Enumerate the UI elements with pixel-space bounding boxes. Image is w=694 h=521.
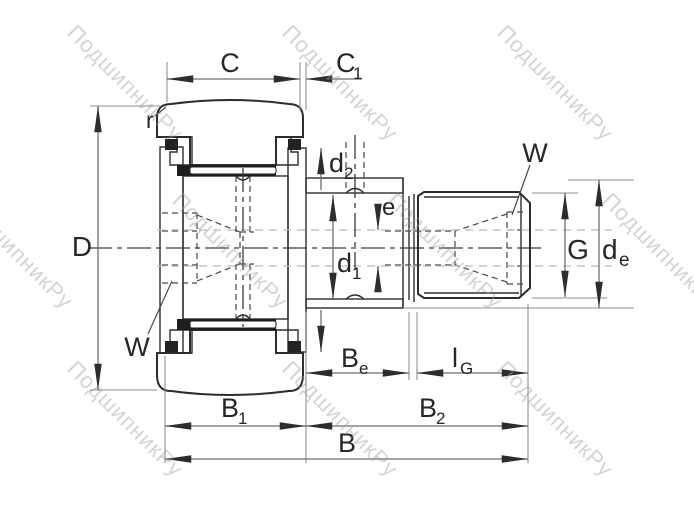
collar-bottom-section [306,299,403,308]
dim-label-d1: d [337,248,352,278]
watermark-text: ПодшипникРу [277,20,403,146]
drawing-canvas: C C 1 r D W W d 2 d 1 e G d e B e l G B … [0,0,694,521]
dim-label-d2-sub: 2 [344,164,353,183]
dim-label-B2: B [419,393,437,423]
dim-label-B2-sub: 2 [436,409,445,428]
dim-label-C: C [220,48,240,78]
needle-rollers-top [177,165,276,176]
dim-label-d2: d [329,148,344,178]
seal-clamp-bottom-left [165,341,178,352]
dim-label-B1: B [221,393,239,423]
watermark-text: ПодшипникРу [62,356,188,482]
dim-label-de: d [602,234,618,265]
watermark-text: ПодшипникРу [62,20,188,146]
watermark-text: ПодшипникРу [382,188,508,314]
dim-label-G: G [567,234,589,265]
needle-rollers-bottom [177,319,276,330]
dim-label-W-right: W [522,138,548,168]
dim-label-lG-sub: G [460,359,473,378]
seal-clamp-top-right [288,139,301,150]
dim-label-B1-sub: 1 [238,409,247,428]
outer-ring-bottom-section [157,330,303,395]
dim-label-D: D [72,231,92,262]
dim-label-de-sub: e [619,250,630,271]
watermark-text: ПодшипникРу [492,20,618,146]
watermark-text: ПодшипникРу [277,356,403,482]
dim-label-lG: l [452,343,458,373]
dim-label-W-left: W [124,332,150,362]
watermark-text: ПодшипникРу [0,188,78,314]
flange-washer [288,148,306,352]
watermark-text: ПодшипникРу [492,356,618,482]
dim-label-d1-sub: 1 [352,264,361,283]
dim-label-Be-sub: e [359,359,368,378]
bearing-section-drawing: C C 1 r D W W d 2 d 1 e G d e B e l G B … [0,0,694,521]
watermark-text: ПодшипникРу [167,188,293,314]
dim-label-Be: B [341,343,359,373]
seal-clamp-bottom-right [288,341,301,352]
